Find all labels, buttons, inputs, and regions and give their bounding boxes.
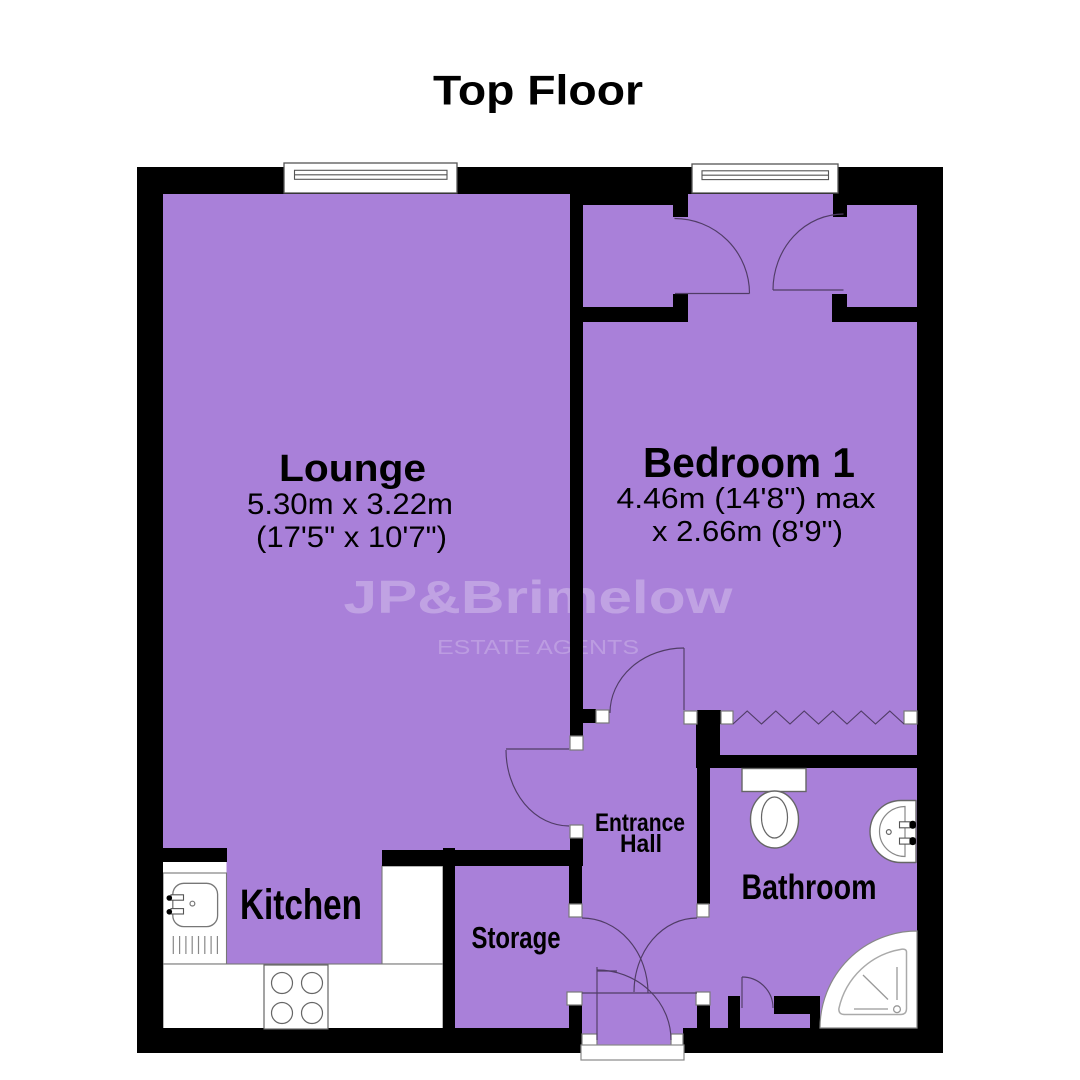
svg-text:Bedroom 1: Bedroom 1 [643,439,855,486]
svg-text:Storage: Storage [472,920,561,955]
svg-text:4.46m (14'8") max: 4.46m (14'8") max [617,483,877,515]
svg-text:Hall: Hall [620,830,662,858]
svg-text:Kitchen: Kitchen [240,881,362,929]
svg-text:Lounge: Lounge [279,448,426,490]
svg-text:5.30m x 3.22m: 5.30m x 3.22m [247,488,453,521]
svg-text:Bathroom: Bathroom [742,868,877,907]
svg-text:(17'5" x 10'7"): (17'5" x 10'7") [256,521,447,554]
svg-text:JP&Brimelow: JP&Brimelow [344,571,733,623]
svg-text:x 2.66m (8'9"): x 2.66m (8'9") [652,516,843,548]
svg-text:ESTATE AGENTS: ESTATE AGENTS [437,637,639,659]
svg-text:Top Floor: Top Floor [433,67,643,114]
